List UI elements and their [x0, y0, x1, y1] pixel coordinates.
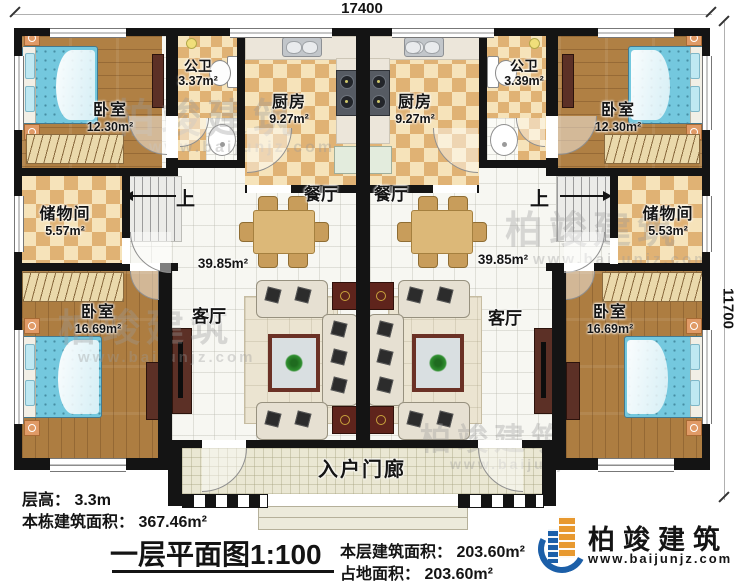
room-label-kitchen-left: 厨房 9.27m²: [256, 94, 322, 127]
room-label-storage-right: 储物间 5.53m²: [622, 206, 714, 239]
stairs-up-label-right: 上: [530, 184, 549, 211]
window: [598, 458, 674, 472]
bed-pillow: [25, 53, 35, 79]
porch-step: [258, 517, 468, 530]
side-table: [332, 406, 358, 434]
bed-pillow: [690, 86, 700, 112]
bed-pillow: [25, 380, 35, 406]
brand-logo-icon: [538, 516, 586, 570]
wash-basin: [490, 124, 518, 156]
window: [598, 28, 674, 38]
wall: [178, 160, 245, 168]
room-label-living-right: 客厅: [488, 309, 522, 329]
wall: [14, 168, 178, 176]
area-label-right: 39.85m²: [474, 252, 532, 268]
note-total-building-area: 本栋建筑面积： 367.46m²: [22, 508, 207, 532]
plan-title: 一层平面图1:100: [110, 533, 322, 573]
bed-pillow: [690, 344, 700, 370]
wardrobe-bottom-right: [602, 272, 704, 302]
room-label-bedroom-top-left: 卧室 12.30m²: [62, 102, 158, 135]
tv-cabinet-bedroom: [562, 54, 574, 108]
porch-label: 入户门廊: [262, 459, 462, 482]
bed-pillow: [690, 380, 700, 406]
window: [702, 330, 712, 424]
window: [230, 28, 332, 38]
room-label-dining-right: 餐厅: [374, 185, 408, 205]
window: [702, 56, 712, 130]
door-opening: [478, 440, 522, 448]
door-opening: [433, 185, 477, 193]
room-label-kitchen-right: 厨房 9.27m²: [382, 94, 448, 127]
wall: [479, 160, 546, 168]
room-label-bedroom-top-right: 卧室 12.30m²: [570, 102, 666, 135]
dimension-tick: [9, 6, 20, 17]
side-table: [368, 282, 394, 310]
floor-plan-page: { "dimensions": { "top": "17400", "right…: [0, 0, 750, 583]
nightstand: [686, 420, 702, 436]
kitchen-sink: [404, 37, 444, 57]
door-opening: [247, 185, 291, 193]
side-table: [368, 406, 394, 434]
window: [50, 458, 126, 472]
dining-table-left: [253, 210, 315, 254]
stairs-up-label-left: 上: [176, 184, 195, 211]
area-label-left: 39.85m²: [194, 256, 252, 272]
dimension-top-value: 17400: [322, 0, 402, 17]
stairs-arrow-left: [132, 195, 176, 197]
room-label-storage-left: 储物间 5.57m²: [20, 206, 110, 239]
coffee-table-left: [268, 334, 320, 392]
wall: [546, 168, 710, 176]
door-opening: [202, 440, 246, 448]
brand-url: www.baijunjz.com: [588, 551, 732, 566]
ceiling-lamp-icon: [529, 38, 540, 49]
dining-table-right: [411, 210, 473, 254]
bed-pillow: [25, 86, 35, 112]
wall-center-divider: [356, 28, 370, 448]
note-floor-height: 层高： 3.3m: [22, 486, 111, 510]
dimension-tick: [705, 6, 716, 17]
wardrobe-bottom-left: [22, 272, 124, 302]
porch-railing: [182, 494, 268, 508]
ceiling-lamp-icon: [186, 38, 197, 49]
door-opening: [546, 116, 558, 158]
room-label-bedroom-bottom-right: 卧室 16.69m²: [562, 304, 658, 337]
nightstand: [24, 420, 40, 436]
coffee-table-right: [412, 334, 464, 392]
wardrobe-top-left: [26, 134, 124, 164]
door-opening: [610, 238, 618, 264]
nightstand: [686, 318, 702, 334]
window: [14, 56, 24, 130]
kitchen-sink: [282, 37, 322, 57]
side-table: [332, 282, 358, 310]
room-label-dining-left: 餐厅: [304, 185, 338, 205]
dimension-right-value: 11700: [720, 279, 737, 339]
window: [392, 28, 494, 38]
room-label-living-left: 客厅: [192, 307, 226, 327]
bed-pillow: [25, 344, 35, 370]
logo-building-orange-icon: [559, 516, 575, 558]
wall: [552, 263, 566, 470]
stove: [336, 70, 358, 116]
fridge: [368, 146, 392, 174]
stat-floor-area: 本层建筑面积： 203.60m²: [340, 538, 525, 562]
wardrobe-top-right: [604, 134, 700, 164]
room-label-bedroom-bottom-left: 卧室 16.69m²: [50, 304, 146, 337]
wall: [158, 263, 172, 470]
door-opening: [122, 238, 130, 264]
bed-pillow: [690, 53, 700, 79]
nightstand: [24, 318, 40, 334]
room-label-bath-right: 公卫 3.39m²: [496, 58, 552, 88]
desk-bedroom-right: [566, 362, 580, 420]
stairs-arrow-right: [560, 195, 604, 197]
title-underline: [112, 570, 334, 573]
door-opening: [166, 116, 178, 158]
fridge: [334, 146, 358, 174]
wall: [479, 28, 487, 168]
window: [14, 330, 24, 424]
dimension-line-right: [724, 22, 725, 500]
room-label-bath-left: 公卫 3.37m²: [170, 58, 226, 88]
wall: [237, 28, 245, 168]
stat-footprint-area: 占地面积： 203.60m²: [340, 560, 493, 584]
tv-screen: [541, 342, 546, 398]
porch-railing: [458, 494, 544, 508]
window: [50, 28, 126, 38]
logo-building-blue-icon: [548, 529, 558, 563]
